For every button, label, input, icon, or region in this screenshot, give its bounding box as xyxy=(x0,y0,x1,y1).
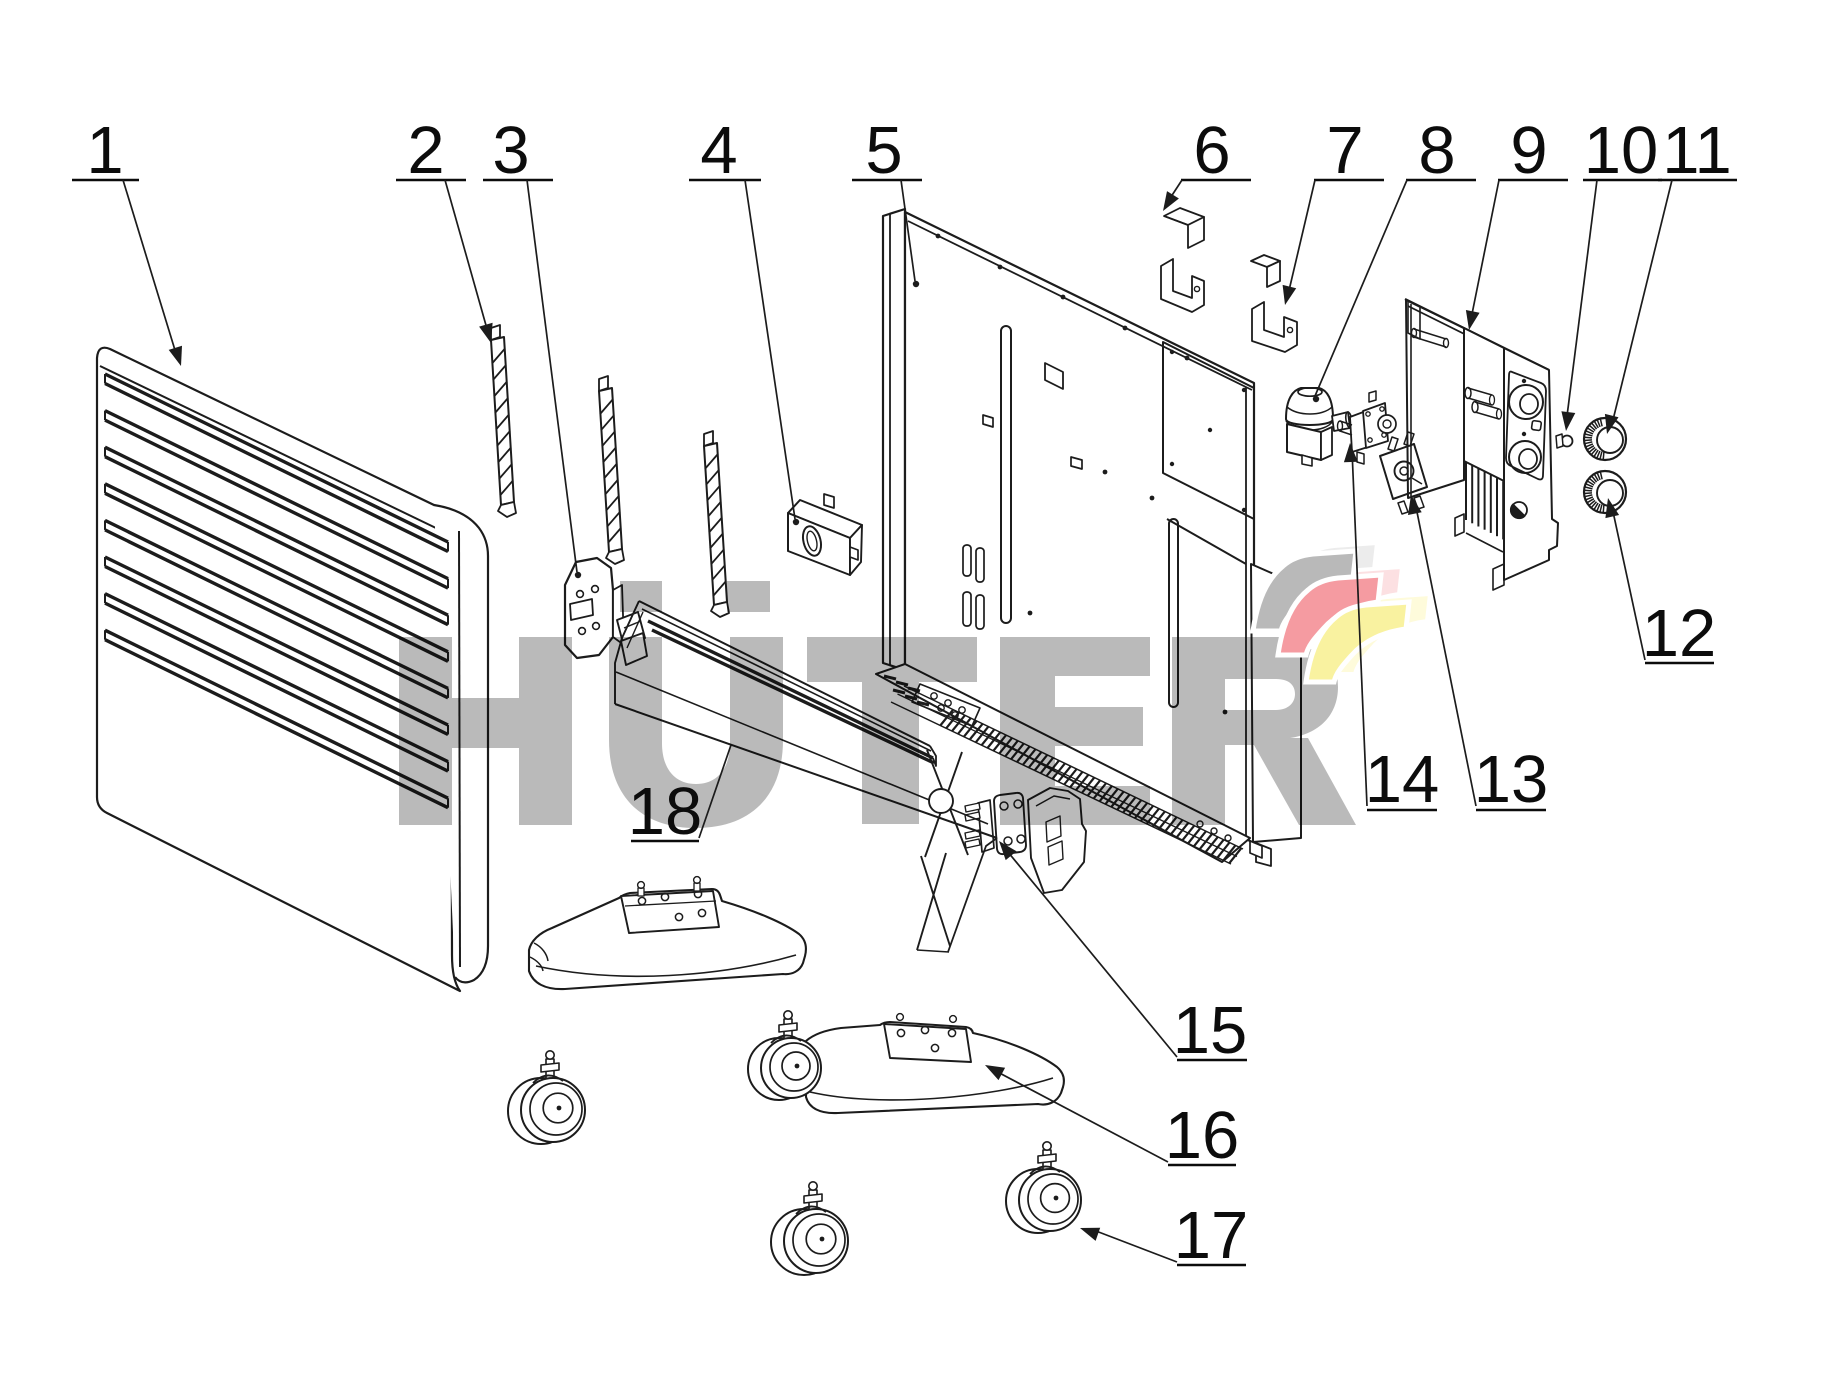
svg-text:14: 14 xyxy=(1365,742,1440,817)
svg-text:11: 11 xyxy=(1662,113,1732,188)
svg-text:1: 1 xyxy=(86,113,123,188)
svg-text:3: 3 xyxy=(492,113,529,188)
svg-text:4: 4 xyxy=(700,113,737,188)
svg-text:9: 9 xyxy=(1510,113,1547,188)
svg-text:10: 10 xyxy=(1584,113,1659,188)
svg-text:6: 6 xyxy=(1193,113,1230,188)
svg-text:5: 5 xyxy=(865,113,902,188)
svg-text:16: 16 xyxy=(1165,1098,1240,1173)
svg-text:8: 8 xyxy=(1418,113,1455,188)
svg-text:15: 15 xyxy=(1173,993,1248,1068)
svg-text:12: 12 xyxy=(1642,596,1717,671)
svg-text:7: 7 xyxy=(1326,113,1363,188)
svg-text:18: 18 xyxy=(628,774,703,849)
svg-text:17: 17 xyxy=(1174,1198,1249,1273)
svg-text:2: 2 xyxy=(407,113,444,188)
svg-text:13: 13 xyxy=(1474,742,1549,817)
